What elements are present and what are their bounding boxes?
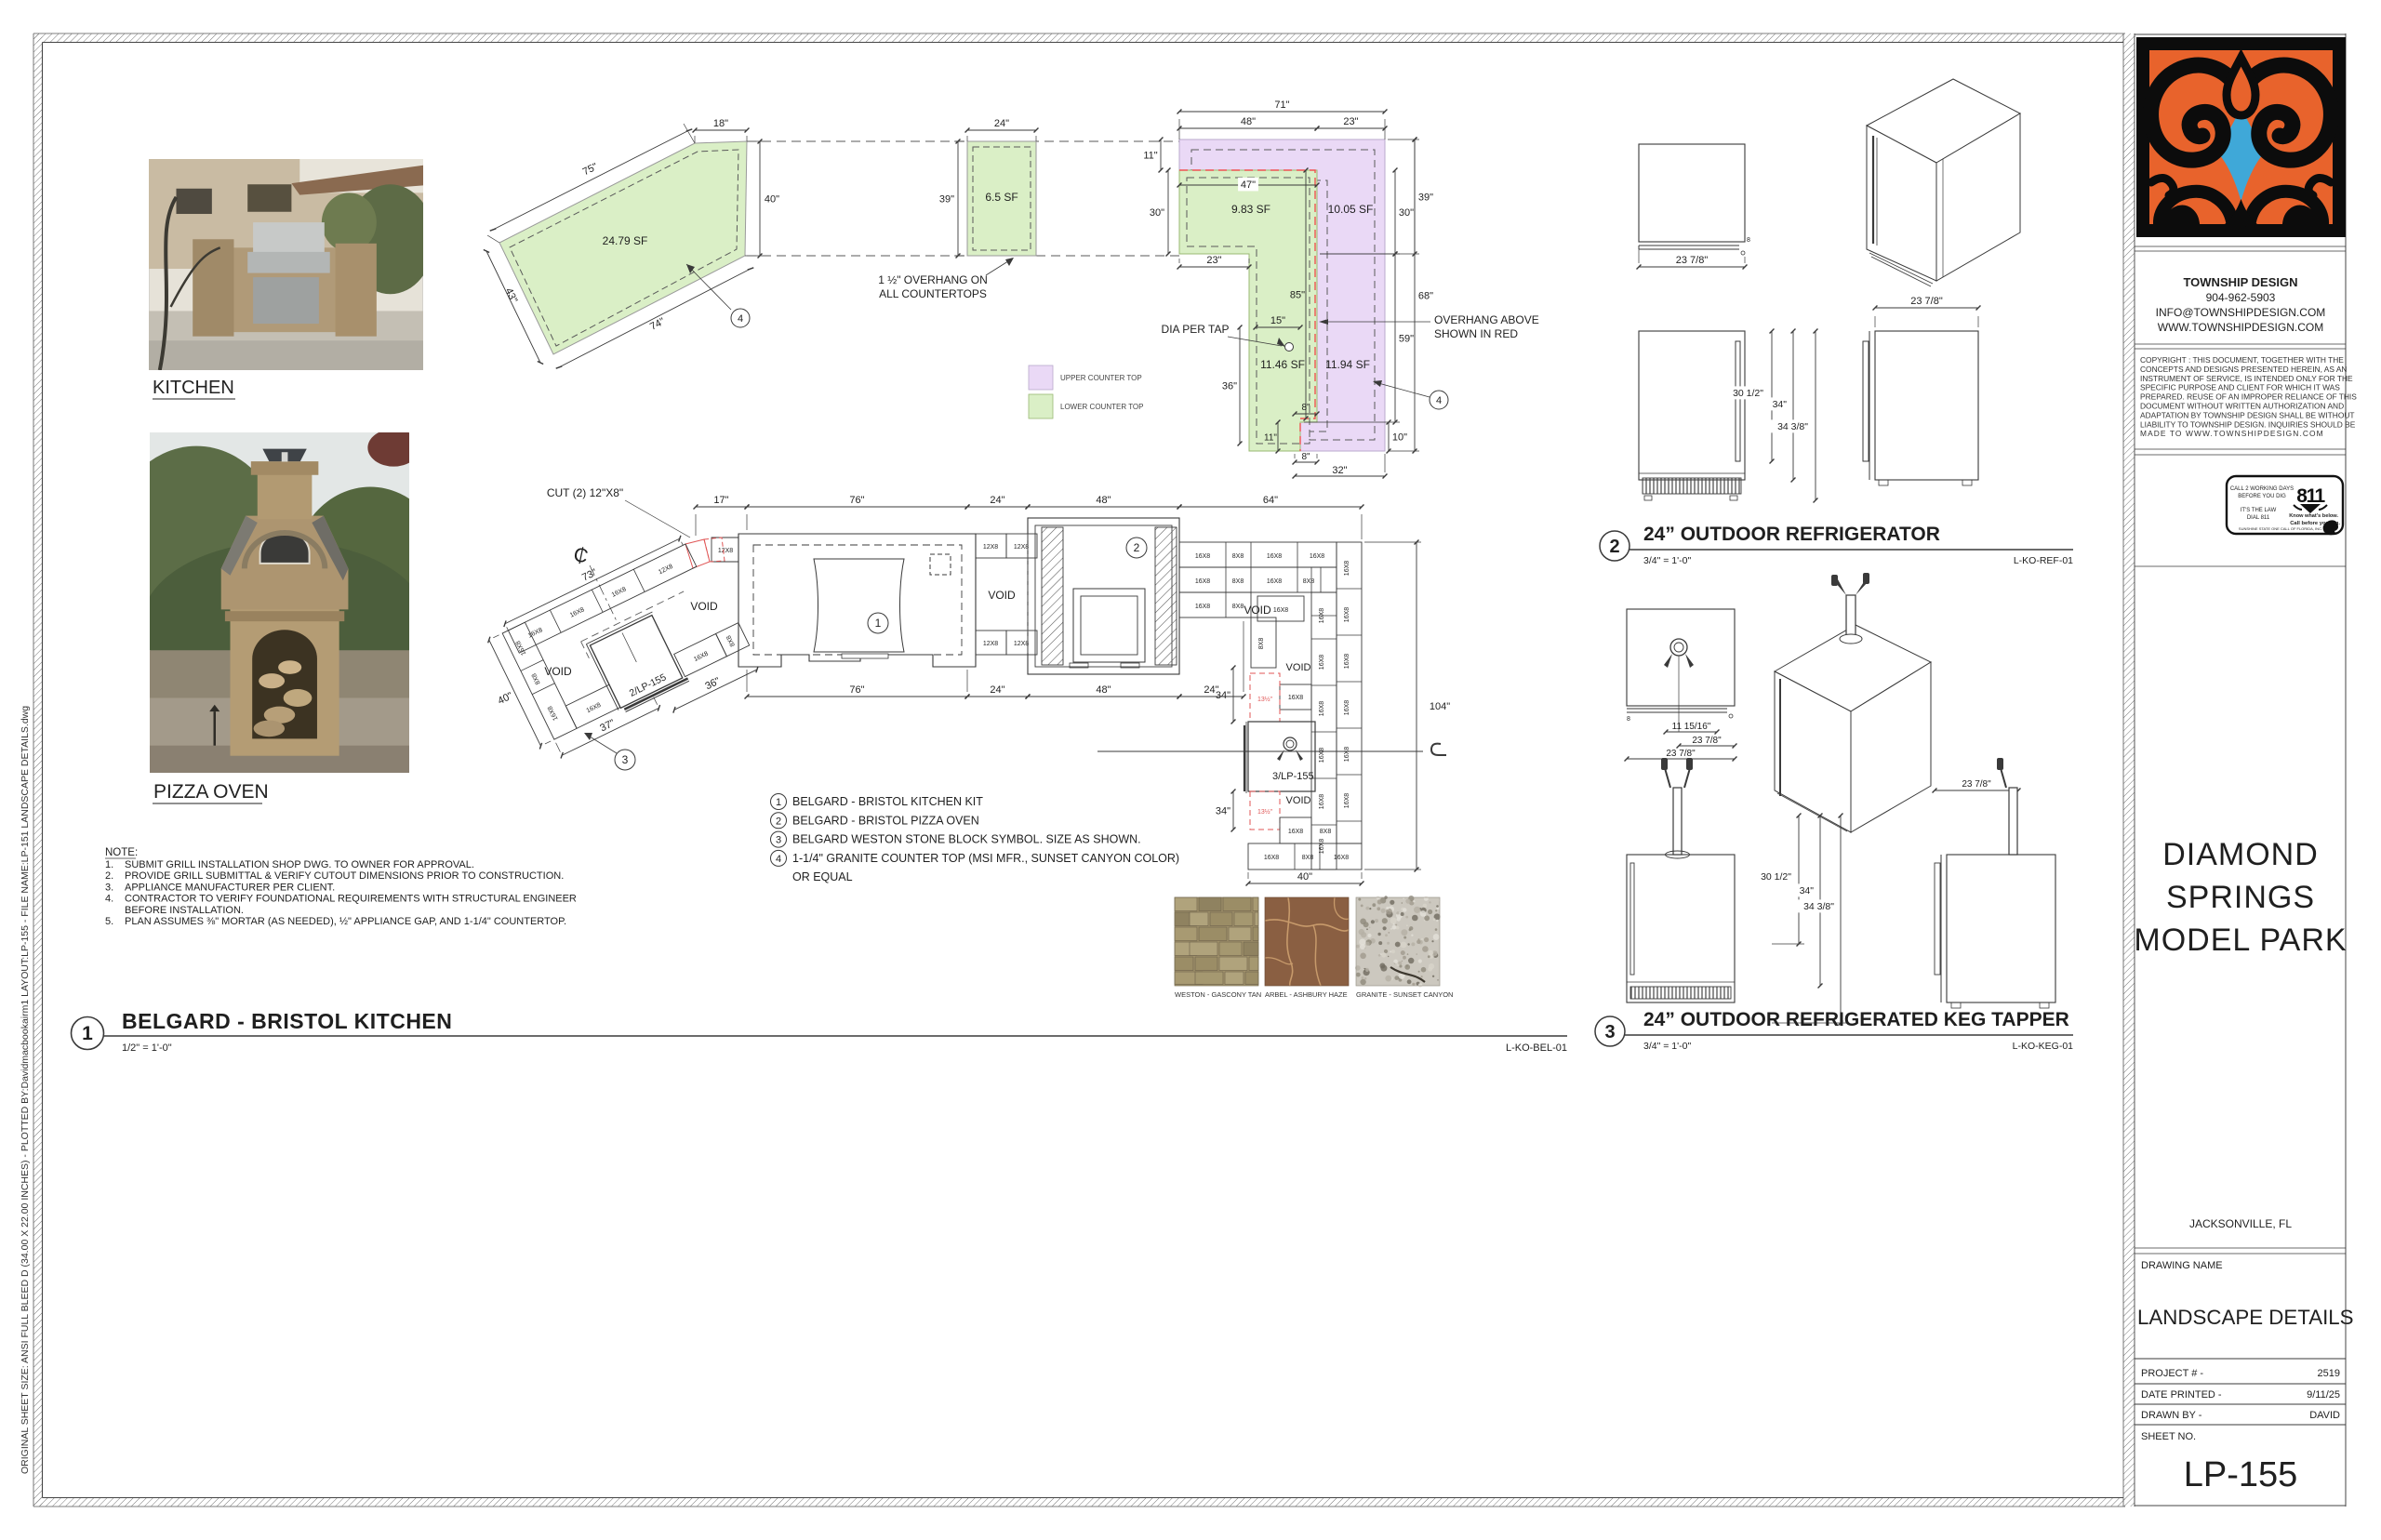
svg-text:BELGARD - BRISTOL PIZZA OVEN: BELGARD - BRISTOL PIZZA OVEN (792, 814, 979, 827)
svg-text:ORIGINAL SHEET SIZE: ANSI FULL: ORIGINAL SHEET SIZE: ANSI FULL BLEED D (… (20, 706, 31, 1474)
svg-text:34": 34" (1800, 885, 1815, 896)
svg-text:11.46 SF: 11.46 SF (1260, 358, 1305, 371)
svg-text:23 7/8": 23 7/8" (1666, 749, 1696, 759)
svg-text:DAVID: DAVID (2309, 1410, 2340, 1421)
svg-text:CONCEPTS AND DESIGNS PRESENTED: CONCEPTS AND DESIGNS PRESENTED HEREIN, A… (2140, 365, 2347, 374)
svg-text:16X8: 16X8 (1288, 829, 1303, 835)
svg-text:904-962-5903: 904-962-5903 (2206, 291, 2276, 304)
svg-text:4: 4 (1436, 395, 1442, 406)
svg-text:10": 10" (1392, 432, 1407, 444)
svg-text:IT'S THE LAW: IT'S THE LAW (2241, 508, 2277, 513)
svg-text:2.: 2. (105, 870, 113, 882)
svg-text:8: 8 (1627, 716, 1630, 723)
svg-text:24” OUTDOOR REFRIGERATOR: 24” OUTDOOR REFRIGERATOR (1643, 524, 1940, 545)
svg-text:24": 24" (990, 684, 1004, 696)
svg-text:1.: 1. (105, 859, 113, 870)
svg-text:LP-155: LP-155 (2184, 1455, 2298, 1494)
svg-text:SUNSHINE STATE ONE CALL OF FLO: SUNSHINE STATE ONE CALL OF FLORIDA, INC. (2239, 526, 2322, 531)
svg-text:PIZZA OVEN: PIZZA OVEN (153, 781, 269, 803)
svg-text:8": 8" (1301, 452, 1310, 462)
svg-text:3.: 3. (105, 882, 113, 893)
svg-text:DIAL 811: DIAL 811 (2247, 515, 2270, 521)
svg-text:11 15/16": 11 15/16" (1672, 722, 1711, 732)
svg-text:11.94 SF: 11.94 SF (1325, 358, 1370, 371)
svg-text:BEFORE YOU DIG: BEFORE YOU DIG (2238, 494, 2286, 499)
svg-text:1-1/4" GRANITE COUNTER TOP (MS: 1-1/4" GRANITE COUNTER TOP (MSI MFR., SU… (792, 852, 1179, 865)
svg-text:8X8: 8X8 (1302, 855, 1314, 861)
svg-text:30": 30" (1399, 207, 1414, 219)
svg-text:71": 71" (1274, 100, 1289, 111)
svg-text:WESTON - GASCONY TAN: WESTON - GASCONY TAN (1175, 990, 1261, 999)
svg-text:VOID: VOID (1286, 795, 1311, 806)
svg-text:6.5 SF: 6.5 SF (985, 191, 1018, 204)
svg-text:12X8: 12X8 (718, 548, 733, 554)
svg-text:DOCUMENT WITHOUT WRITTEN AUTHO: DOCUMENT WITHOUT WRITTEN AUTHORIZATION A… (2140, 402, 2344, 411)
svg-text:L-KO-REF-01: L-KO-REF-01 (2014, 555, 2073, 566)
svg-text:VOID: VOID (690, 600, 718, 613)
svg-text:NOTE:: NOTE: (105, 847, 138, 858)
svg-text:16X8: 16X8 (1344, 793, 1350, 808)
svg-text:16X8: 16X8 (1344, 700, 1350, 715)
svg-text:L-KO-KEG-01: L-KO-KEG-01 (2013, 1041, 2074, 1052)
svg-text:PROVIDE GRILL SUBMITTAL & VERI: PROVIDE GRILL SUBMITTAL & VERIFY CUTOUT … (125, 870, 564, 882)
svg-text:DRAWN BY -: DRAWN BY - (2141, 1410, 2202, 1421)
svg-text:40": 40" (1297, 871, 1312, 883)
svg-text:48": 48" (1096, 684, 1111, 696)
svg-text:48": 48" (1241, 116, 1256, 127)
svg-text:8X8: 8X8 (1320, 829, 1332, 835)
svg-text:1: 1 (875, 617, 882, 630)
svg-text:17": 17" (713, 495, 728, 506)
svg-text:16X8: 16X8 (1334, 855, 1349, 861)
svg-text:16X8: 16X8 (1267, 553, 1282, 560)
svg-text:KITCHEN: KITCHEN (153, 378, 234, 398)
svg-text:CUT (2) 12"X8": CUT (2) 12"X8" (547, 486, 623, 499)
svg-text:24": 24" (990, 495, 1004, 506)
svg-text:9.83 SF: 9.83 SF (1231, 203, 1270, 216)
svg-text:12X8: 12X8 (1014, 544, 1029, 551)
svg-text:47": 47" (1241, 179, 1256, 191)
svg-text:16X8: 16X8 (1195, 553, 1210, 560)
svg-text:SHOWN IN RED: SHOWN IN RED (1434, 327, 1518, 340)
svg-text:16X8: 16X8 (1344, 561, 1350, 576)
svg-text:16X8: 16X8 (1319, 655, 1325, 670)
svg-text:DIA PER TAP: DIA PER TAP (1162, 323, 1230, 336)
svg-text:30": 30" (1150, 207, 1164, 219)
svg-text:SPECIFIC PURPOSE AND CLIENT FO: SPECIFIC PURPOSE AND CLIENT FOR WHICH IT… (2140, 383, 2340, 392)
svg-text:16X8: 16X8 (1344, 607, 1350, 622)
svg-text:811: 811 (2296, 485, 2325, 507)
svg-text:OR EQUAL: OR EQUAL (792, 870, 853, 883)
svg-text:30 1/2": 30 1/2" (1733, 388, 1763, 399)
svg-text:3: 3 (1604, 1022, 1615, 1042)
svg-text:PLAN ASSUMES ⅜" MORTAR (AS NEE: PLAN ASSUMES ⅜" MORTAR (AS NEEDED), ½" A… (125, 916, 566, 927)
svg-text:39": 39" (1418, 192, 1433, 204)
svg-text:APPLIANCE MANUFACTURER PER CLI: APPLIANCE MANUFACTURER PER CLIENT. (125, 882, 335, 893)
svg-text:30 1/2": 30 1/2" (1761, 871, 1791, 883)
svg-text:MADE TO WWW.TOWNSHIPDESIGN.COM: MADE TO WWW.TOWNSHIPDESIGN.COM (2140, 429, 2324, 438)
svg-text:DATE PRINTED -: DATE PRINTED - (2141, 1389, 2222, 1401)
svg-text:L-KO-BEL-01: L-KO-BEL-01 (1506, 1042, 1567, 1054)
svg-text:16X8: 16X8 (1319, 748, 1325, 763)
svg-text:16X8: 16X8 (1195, 578, 1210, 585)
svg-text:WWW.TOWNSHIPDESIGN.COM: WWW.TOWNSHIPDESIGN.COM (2158, 321, 2323, 334)
svg-text:5.: 5. (105, 916, 113, 927)
svg-text:23 7/8": 23 7/8" (1910, 296, 1943, 307)
svg-text:PROJECT # -: PROJECT # - (2141, 1368, 2203, 1379)
svg-text:16X8: 16X8 (1310, 553, 1324, 560)
svg-text:16X8: 16X8 (1288, 695, 1303, 701)
svg-text:59": 59" (1399, 334, 1414, 345)
svg-text:4: 4 (776, 854, 781, 865)
svg-text:2519: 2519 (2318, 1368, 2340, 1379)
svg-text:1 ½" OVERHANG ON: 1 ½" OVERHANG ON (878, 273, 988, 286)
svg-text:8": 8" (1301, 403, 1310, 413)
svg-text:10.05 SF: 10.05 SF (1328, 203, 1374, 216)
svg-text:8: 8 (1747, 237, 1750, 244)
svg-text:SUBMIT GRILL INSTALLATION SHOP: SUBMIT GRILL INSTALLATION SHOP DWG. TO O… (125, 859, 474, 870)
svg-text:12X8: 12X8 (1014, 641, 1029, 647)
svg-text:76": 76" (849, 684, 864, 696)
svg-text:2: 2 (1609, 537, 1619, 557)
svg-text:16X8: 16X8 (1319, 794, 1325, 809)
svg-text:9/11/25: 9/11/25 (2307, 1389, 2340, 1401)
svg-text:36": 36" (1222, 381, 1237, 392)
svg-text:GRANITE - SUNSET CANYON: GRANITE - SUNSET CANYON (1356, 990, 1453, 999)
svg-text:39": 39" (939, 194, 954, 206)
svg-text:16X8: 16X8 (1273, 607, 1288, 614)
svg-text:23 7/8": 23 7/8" (1692, 736, 1722, 746)
svg-text:23": 23" (1206, 255, 1221, 266)
svg-text:34 3/8": 34 3/8" (1777, 421, 1808, 432)
svg-text:18": 18" (713, 118, 728, 129)
svg-text:34 3/8": 34 3/8" (1803, 901, 1834, 912)
svg-text:3: 3 (622, 753, 629, 766)
svg-text:16X8: 16X8 (1319, 701, 1325, 716)
svg-text:24.79 SF: 24.79 SF (603, 234, 648, 247)
svg-text:VOID: VOID (1286, 662, 1311, 673)
svg-text:ADAPTATION BY TOWNSHIP DESIGN: ADAPTATION BY TOWNSHIP DESIGN SHALL BE W… (2140, 410, 2355, 419)
svg-text:PREPARED. REUSE OF AN IMPROPER: PREPARED. REUSE OF AN IMPROPER RELIANCE … (2140, 392, 2357, 402)
svg-text:23 7/8": 23 7/8" (1676, 255, 1709, 266)
svg-text:LANDSCAPE DETAILS: LANDSCAPE DETAILS (2137, 1306, 2354, 1329)
svg-text:8X8: 8X8 (1258, 638, 1265, 650)
svg-text:VOID: VOID (988, 589, 1016, 602)
svg-text:16X8: 16X8 (1195, 604, 1210, 610)
svg-text:ALL COUNTERTOPS: ALL COUNTERTOPS (879, 287, 987, 300)
svg-text:24” OUTDOOR REFRIGERATED KEG T: 24” OUTDOOR REFRIGERATED KEG TAPPER (1643, 1009, 2069, 1030)
svg-text:12X8: 12X8 (983, 544, 998, 551)
svg-text:104": 104" (1430, 701, 1450, 712)
svg-text:1/2" = 1'-0": 1/2" = 1'-0" (122, 1042, 172, 1054)
svg-text:BELGARD - BRISTOL KITCHEN: BELGARD - BRISTOL KITCHEN (122, 1009, 452, 1033)
svg-text:4: 4 (738, 313, 743, 325)
svg-text:INSTRUMENT OF SERVICE, IS INTE: INSTRUMENT OF SERVICE, IS INTENDED ONLY … (2140, 374, 2353, 383)
svg-text:LOWER COUNTER TOP: LOWER COUNTER TOP (1060, 403, 1144, 411)
svg-text:1: 1 (82, 1023, 93, 1044)
svg-text:VOID: VOID (544, 665, 572, 678)
svg-text:2: 2 (1134, 541, 1140, 554)
svg-text:DIAMOND: DIAMOND (2162, 837, 2319, 872)
svg-text:23": 23" (1343, 116, 1358, 127)
svg-text:BEFORE INSTALLATION.: BEFORE INSTALLATION. (125, 905, 244, 916)
svg-text:16X8: 16X8 (1344, 654, 1350, 669)
svg-text:3/4" = 1'-0": 3/4" = 1'-0" (1643, 1041, 1691, 1052)
svg-text:16X8: 16X8 (1264, 855, 1279, 861)
svg-text:CONTRACTOR TO VERIFY FOUNDATIO: CONTRACTOR TO VERIFY FOUNDATIONAL REQUIR… (125, 894, 577, 905)
svg-text:OVERHANG ABOVE: OVERHANG ABOVE (1434, 313, 1539, 326)
svg-text:15": 15" (1270, 315, 1285, 326)
svg-text:3/4" = 1'-0": 3/4" = 1'-0" (1643, 555, 1691, 566)
svg-text:8X8: 8X8 (1303, 578, 1315, 585)
svg-text:13½": 13½" (1257, 808, 1273, 816)
svg-text:68": 68" (1418, 291, 1433, 302)
svg-text:BELGARD WESTON STONE BLOCK SYM: BELGARD WESTON STONE BLOCK SYMBOL. SIZE … (792, 833, 1141, 846)
svg-text:8X8: 8X8 (1232, 604, 1244, 610)
svg-text:SHEET NO.: SHEET NO. (2141, 1431, 2196, 1442)
svg-text:4.: 4. (105, 894, 113, 905)
svg-text:13½": 13½" (1257, 696, 1273, 703)
svg-text:LIABILITY TO TOWNSHIP DESIGN.: LIABILITY TO TOWNSHIP DESIGN. INQUIRIES … (2140, 419, 2356, 429)
svg-text:16X8: 16X8 (1344, 747, 1350, 762)
svg-text:2: 2 (776, 816, 781, 827)
svg-text:DRAWING NAME: DRAWING NAME (2141, 1260, 2223, 1271)
svg-text:85": 85" (1290, 290, 1305, 301)
svg-text:3/LP-155: 3/LP-155 (1272, 771, 1314, 782)
svg-text:JACKSONVILLE, FL: JACKSONVILLE, FL (2189, 1217, 2292, 1230)
svg-text:1: 1 (776, 797, 781, 808)
svg-text:MODEL PARK: MODEL PARK (2134, 923, 2347, 958)
svg-text:SPRINGS: SPRINGS (2166, 880, 2315, 915)
svg-text:48": 48" (1096, 495, 1111, 506)
svg-text:12X8: 12X8 (983, 641, 998, 647)
svg-text:ARBEL - ASHBURY HAZE: ARBEL - ASHBURY HAZE (1265, 990, 1348, 999)
svg-text:34": 34" (1773, 399, 1788, 410)
svg-text:CALL 2 WORKING DAYS: CALL 2 WORKING DAYS (2230, 486, 2294, 492)
svg-text:11": 11" (1143, 151, 1157, 162)
svg-text:INFO@TOWNSHIPDESIGN.COM: INFO@TOWNSHIPDESIGN.COM (2156, 306, 2326, 319)
svg-text:40": 40" (765, 194, 779, 206)
svg-text:8X8: 8X8 (1232, 553, 1244, 560)
svg-text:24": 24" (994, 118, 1009, 129)
svg-text:64": 64" (1263, 495, 1278, 506)
svg-text:TOWNSHIP DESIGN: TOWNSHIP DESIGN (2183, 275, 2297, 289)
svg-text:76": 76" (849, 495, 864, 506)
svg-text:UPPER COUNTER TOP: UPPER COUNTER TOP (1060, 374, 1142, 382)
svg-text:3: 3 (776, 835, 781, 846)
svg-text:34": 34" (1216, 806, 1230, 817)
svg-text:COPYRIGHT : THIS DOCUMENT, TOG: COPYRIGHT : THIS DOCUMENT, TOGETHER WITH… (2140, 355, 2344, 365)
svg-text:34": 34" (1216, 690, 1230, 701)
svg-text:11": 11" (1264, 433, 1277, 444)
svg-text:8X8: 8X8 (1232, 578, 1244, 585)
svg-text:16X8: 16X8 (1267, 578, 1282, 585)
svg-text:23 7/8": 23 7/8" (1962, 779, 1991, 790)
svg-text:Know what’s below.: Know what’s below. (2289, 513, 2338, 519)
svg-text:32": 32" (1332, 465, 1347, 476)
svg-text:BELGARD - BRISTOL KITCHEN KIT: BELGARD - BRISTOL KITCHEN KIT (792, 795, 983, 808)
